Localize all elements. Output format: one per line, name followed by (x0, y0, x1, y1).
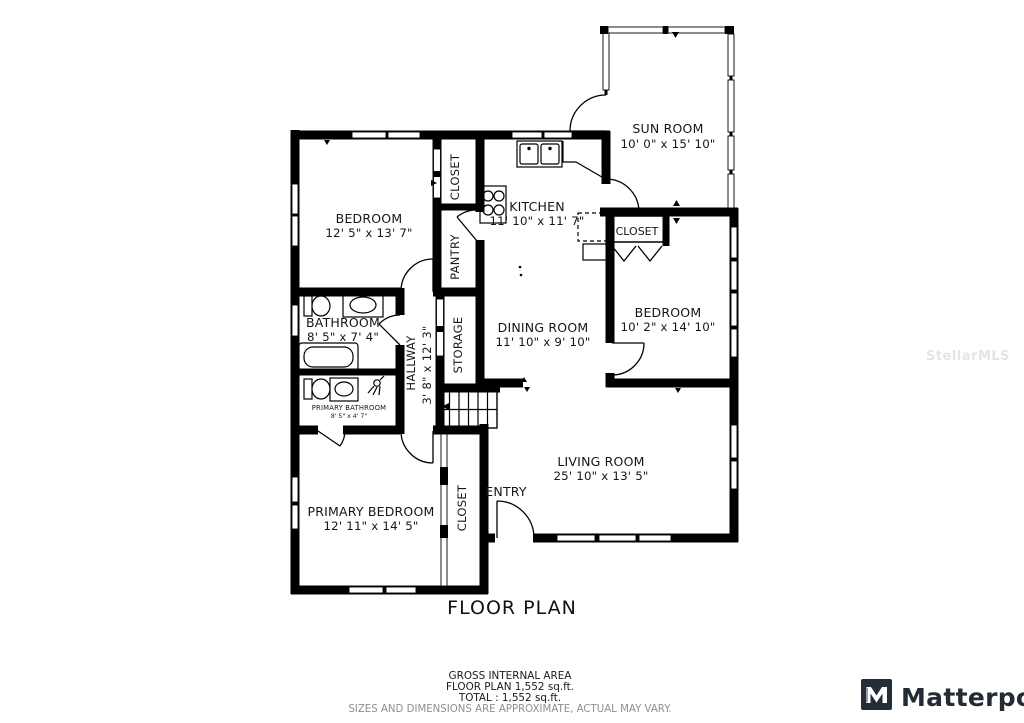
room-dims-dining-room: 11' 10" x 9' 10" (495, 335, 590, 349)
room-dims-bedroom-top: 12' 5" x 13' 7" (325, 226, 412, 240)
matterport-logo-icon (861, 679, 892, 710)
bedroom-right-door (612, 343, 644, 375)
room-label-entry: ENTRY (485, 484, 527, 499)
room-label-sun-room: SUN ROOM (632, 121, 703, 136)
room-dims-sun-room: 10' 0" x 15' 10" (620, 137, 715, 151)
bedroom-top-door (401, 259, 433, 291)
watermark-stellar-mls: StellarMLS (926, 349, 1010, 364)
primary-bathroom-fixtures (304, 378, 358, 401)
bifold-doors (612, 246, 662, 261)
kitchen-counter (563, 141, 607, 180)
room-label-closet-bedroom-right: CLOSET (616, 225, 659, 238)
floor-plan-svg: SUN ROOM 10' 0" x 15' 10" KITCHEN 11' 10… (0, 0, 1024, 723)
footer-disclaimer: SIZES AND DIMENSIONS ARE APPROXIMATE, AC… (348, 704, 671, 715)
page-title: FLOOR PLAN (447, 597, 577, 619)
hallway-primary-door (401, 431, 433, 463)
room-dims-bedroom-right: 10' 2" x 14' 10" (620, 320, 715, 334)
room-dims-living-room: 25' 10" x 13' 5" (553, 469, 648, 483)
bathroom-door (379, 315, 400, 345)
room-label-bedroom-top: BEDROOM (336, 211, 403, 226)
matterport-logo-text: Matterport (901, 683, 1024, 712)
room-label-bathroom: BATHROOM (306, 315, 380, 330)
primary-bathroom-door (318, 431, 345, 446)
room-dims-primary-bedroom: 12' 11" x 14' 5" (323, 519, 418, 533)
entry-door (497, 501, 534, 538)
room-dims-hallway: 3' 8" x 12' 3" (420, 325, 434, 404)
sun-room-exterior-door (570, 95, 606, 131)
room-label-bedroom-right: BEDROOM (635, 305, 702, 320)
room-label-hallway: HALLWAY (404, 335, 418, 391)
room-dims-bathroom: 8' 5" x 7' 4" (307, 330, 379, 344)
sun-room-walls (600, 26, 734, 214)
matterport-logo: Matterport (861, 679, 1024, 712)
floor-plan-page: SUN ROOM 10' 0" x 15' 10" KITCHEN 11' 10… (0, 0, 1024, 723)
room-label-closet-primary: CLOSET (455, 484, 469, 531)
closet-bedroom-right-box (610, 216, 664, 261)
room-label-kitchen: KITCHEN (509, 199, 565, 214)
room-label-closet-top: CLOSET (448, 153, 462, 200)
room-dims-kitchen: 11' 10" x 11' 7" (489, 214, 584, 228)
room-label-pantry: PANTRY (448, 233, 462, 279)
room-label-dining-room: DINING ROOM (498, 320, 589, 335)
room-label-primary-bathroom: PRIMARY BATHROOM (312, 404, 386, 412)
stairs (440, 391, 497, 428)
sun-room-kitchen-door (606, 179, 639, 212)
room-label-storage: STORAGE (451, 317, 465, 374)
room-dims-primary-bathroom: 8' 5" x 4' 7" (331, 413, 368, 420)
room-label-living-room: LIVING ROOM (557, 454, 644, 469)
shower-icon (368, 376, 384, 395)
footer-total-area: TOTAL : 1,552 sq.ft. (458, 692, 561, 704)
room-label-primary-bedroom: PRIMARY BEDROOM (308, 504, 435, 519)
